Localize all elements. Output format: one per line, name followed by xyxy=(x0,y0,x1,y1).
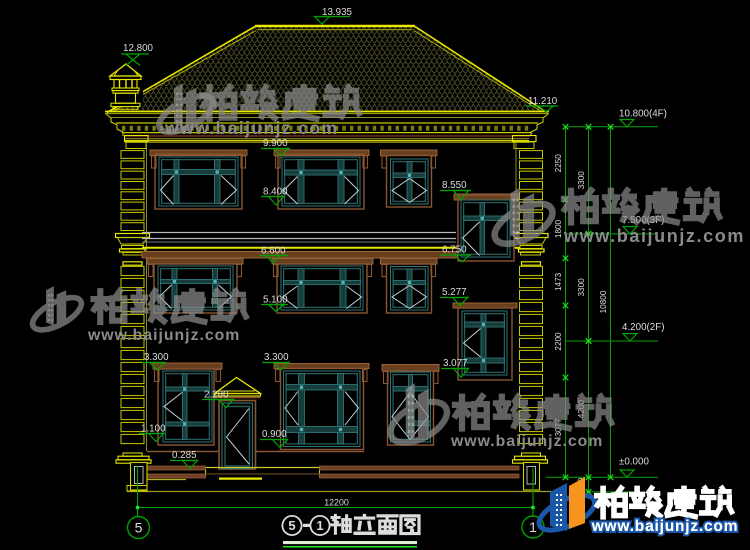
svg-text:3.077: 3.077 xyxy=(443,358,468,369)
svg-text:1.100: 1.100 xyxy=(141,424,166,435)
svg-text:2200: 2200 xyxy=(554,332,563,351)
svg-text:10800: 10800 xyxy=(599,290,608,313)
svg-text:www.baijunjz.com: www.baijunjz.com xyxy=(450,433,603,450)
svg-text:5: 5 xyxy=(288,518,295,533)
svg-text:5.277: 5.277 xyxy=(442,287,467,298)
svg-text:1: 1 xyxy=(316,518,323,533)
svg-text:±0.000: ±0.000 xyxy=(619,457,649,468)
svg-text:2.280: 2.280 xyxy=(204,390,229,401)
svg-text:5.100: 5.100 xyxy=(263,295,288,306)
svg-text:www.baijunjz.com: www.baijunjz.com xyxy=(563,226,745,246)
svg-text:3300: 3300 xyxy=(577,171,586,190)
svg-text:8.400: 8.400 xyxy=(263,187,288,198)
svg-text:3.300: 3.300 xyxy=(144,352,169,363)
svg-text:11.210: 11.210 xyxy=(528,96,558,107)
svg-text:9.900: 9.900 xyxy=(263,138,288,149)
svg-text:1473: 1473 xyxy=(554,272,563,291)
svg-text:12200: 12200 xyxy=(324,498,349,508)
svg-text:3300: 3300 xyxy=(577,278,586,297)
svg-text:5: 5 xyxy=(135,520,143,536)
svg-text:0.285: 0.285 xyxy=(172,450,197,461)
svg-text:www.baijunjz.com: www.baijunjz.com xyxy=(164,118,338,138)
svg-text:1: 1 xyxy=(529,519,537,535)
svg-text:6.600: 6.600 xyxy=(261,246,286,257)
svg-text:www.baijunjz.com: www.baijunjz.com xyxy=(591,518,739,535)
svg-text:2250: 2250 xyxy=(554,154,563,173)
svg-text:8.550: 8.550 xyxy=(442,180,467,191)
svg-text:12.800: 12.800 xyxy=(123,43,154,54)
svg-text:10.800(4F): 10.800(4F) xyxy=(619,109,667,120)
svg-text:3.300: 3.300 xyxy=(264,352,289,363)
svg-text:www.baijunjz.com: www.baijunjz.com xyxy=(87,327,240,344)
svg-text:0.900: 0.900 xyxy=(262,429,287,440)
svg-text:1800: 1800 xyxy=(554,219,563,238)
svg-text:4.200(2F): 4.200(2F) xyxy=(622,322,664,333)
svg-text:6.750: 6.750 xyxy=(442,245,467,256)
